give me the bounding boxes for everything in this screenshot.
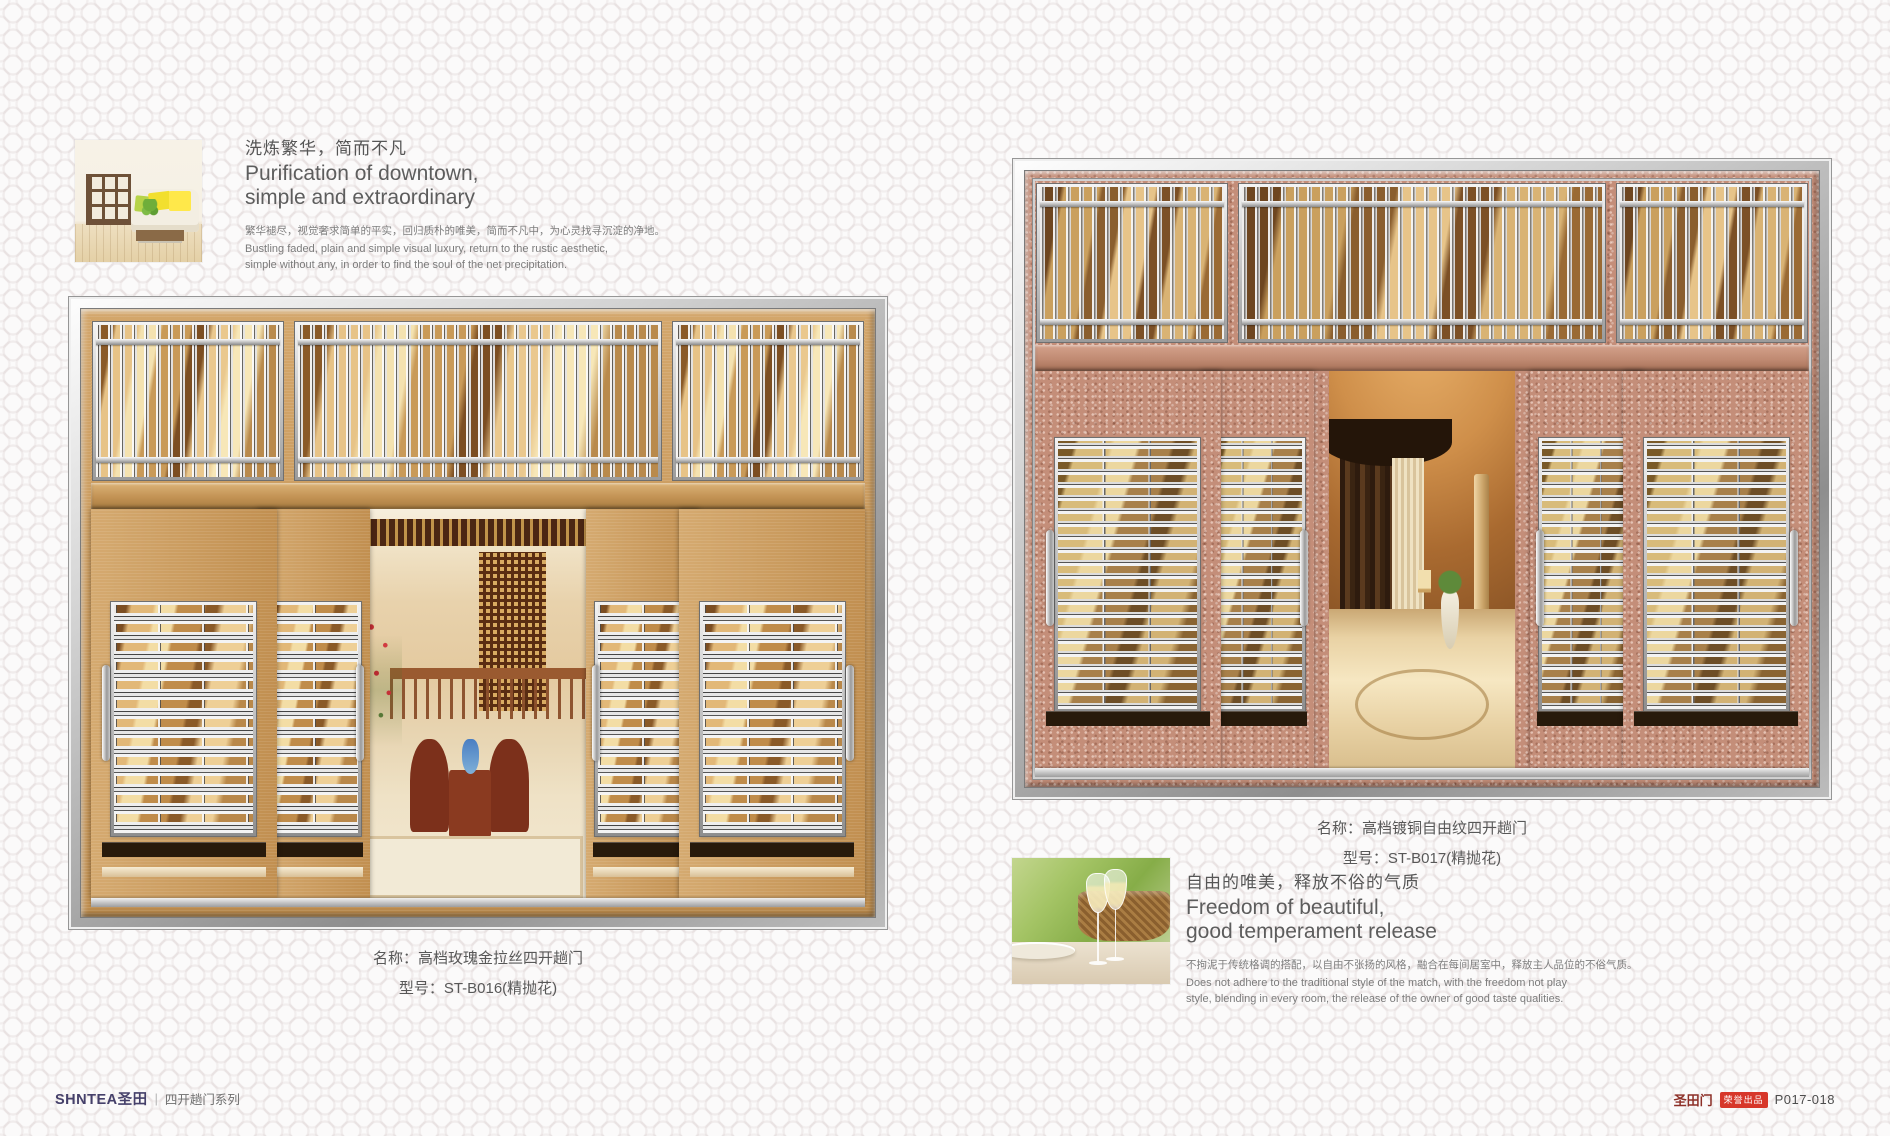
glass-stem: [1115, 909, 1117, 958]
door-main: [1035, 371, 1809, 777]
right-body-en-line1: Does not adhere to the traditional style…: [1186, 977, 1567, 989]
brand-logo: SHNTEA圣田: [55, 1088, 148, 1109]
interior-photo: [350, 509, 598, 898]
grille-window: [266, 602, 360, 835]
grille-bars: [298, 325, 658, 477]
footer-left: SHNTEA圣田 | 四开趟门系列: [55, 1088, 240, 1109]
living-room-photo: [75, 140, 202, 262]
door-main: [91, 509, 865, 907]
left-body-en-line2: simple without any, in order to find the…: [245, 259, 567, 271]
door-product-st-b016: [68, 296, 888, 930]
door-handle: [102, 665, 110, 761]
footer-separator: |: [155, 1092, 158, 1106]
left-body-cn: 繁华褪尽，视觉奢求简单的平实，回归质朴的唯美，简而不凡中，为心灵找寻沉淀的净地。: [245, 223, 675, 239]
transom: [1035, 181, 1809, 345]
grille-window: [111, 602, 256, 835]
right-body-en: Does not adhere to the traditional style…: [1186, 976, 1656, 1008]
left-intro-text: 洗炼繁华，简而不凡 Purification of downtown,simpl…: [245, 134, 675, 274]
transom-rail: [1035, 345, 1809, 371]
wine-glasses-photo: [1012, 858, 1170, 984]
door-panel: [1623, 371, 1809, 768]
glass-bowl: [1104, 869, 1128, 909]
grille-window: [1644, 438, 1789, 712]
door-handle: [1536, 530, 1544, 626]
grille-slats: [114, 605, 253, 832]
kick-stripe: [102, 867, 265, 877]
interior-chair: [489, 739, 529, 832]
right-heading-en-line2: good temperament release: [1186, 920, 1437, 943]
kick-stripe: [264, 842, 363, 857]
door-handle: [846, 665, 854, 761]
kick-stripe: [593, 867, 692, 877]
interior-table: [449, 770, 491, 836]
interior-vase: [462, 739, 479, 774]
kick-stripe: [1537, 711, 1636, 726]
thumb-pillow: [169, 191, 191, 211]
door-product-st-b017: [1012, 158, 1832, 800]
kick-stripe: [593, 842, 692, 857]
grille-bars: [96, 325, 280, 477]
right-door-name: 名称：高档镀铜自由纹四开趟门: [1012, 814, 1832, 844]
series-label: 四开趟门系列: [165, 1089, 240, 1108]
interior-railing: [390, 668, 598, 719]
interior-curtain-swag: [1329, 419, 1452, 467]
door-handle: [592, 665, 600, 761]
grille-slats: [1647, 441, 1786, 709]
glass-foot: [1106, 957, 1124, 961]
grille-window: [1210, 438, 1304, 712]
grille-slats: [703, 605, 842, 832]
right-heading-en-line1: Freedom of beautiful,: [1186, 896, 1384, 919]
kick-stripe: [102, 842, 265, 857]
door-handle: [1300, 530, 1308, 626]
grille-slats: [269, 605, 357, 832]
grille-slats: [1058, 441, 1197, 709]
grille-bars: [1040, 187, 1224, 339]
door-handle: [356, 665, 364, 761]
grille-slats: [598, 605, 686, 832]
wine-glass: [1104, 869, 1128, 965]
interior-chair: [410, 739, 450, 832]
transom-grille-panel: [295, 322, 661, 480]
door-panel: [679, 509, 865, 898]
thumb-coffee-table: [136, 230, 184, 241]
left-door-model: 型号：ST-B016(精抛花): [68, 974, 888, 1004]
quality-badge: 荣誉出品: [1720, 1092, 1768, 1108]
left-heading-cn: 洗炼繁华，简而不凡: [245, 134, 675, 159]
thumb-plant: [141, 199, 159, 226]
door-inner: [91, 319, 865, 907]
left-heading-en-line1: Purification of downtown,: [245, 162, 478, 185]
glass-stem: [1097, 912, 1099, 961]
interior-photo: [1329, 371, 1515, 768]
transom-grille-panel: [1239, 184, 1605, 342]
grille-slats: [1213, 441, 1301, 709]
door-inner: [1035, 181, 1809, 777]
kick-stripe: [690, 867, 853, 877]
interior-rug: [365, 836, 583, 898]
right-body-en-line2: style, blending in every room, the relea…: [1186, 993, 1563, 1005]
left-door-caption: 名称：高档玫瑰金拉丝四开趟门 型号：ST-B016(精抛花): [68, 944, 888, 1004]
grille-window: [1539, 438, 1633, 712]
grille-window: [700, 602, 845, 835]
left-body-en-line1: Bustling faded, plain and simple visual …: [245, 243, 608, 255]
footer-right: 圣田门 荣誉出品 P017-018: [1674, 1090, 1835, 1109]
door-panel: [91, 509, 277, 898]
right-heading-cn: 自由的唯美，释放不俗的气质: [1186, 868, 1656, 893]
right-heading-en: Freedom of beautiful,good temperament re…: [1186, 896, 1656, 943]
left-heading-en-line2: simple and extraordinary: [245, 186, 475, 209]
interior-floor-medallion: [1355, 669, 1489, 740]
kick-stripe: [690, 842, 853, 857]
transom-grille-panel: [673, 322, 863, 480]
grille-slats: [1542, 441, 1630, 709]
right-body-cn: 不拘泥于传统格调的搭配，以自由不张扬的风格，融合在每间居室中，释放主人品位的不俗…: [1186, 957, 1656, 973]
left-door-name: 名称：高档玫瑰金拉丝四开趟门: [68, 944, 888, 974]
transom-rail: [91, 483, 865, 509]
interior-ceiling-lattice: [350, 519, 598, 546]
grille-bars: [1620, 187, 1804, 339]
left-body-en: Bustling faded, plain and simple visual …: [245, 242, 675, 274]
right-intro-text: 自由的唯美，释放不俗的气质 Freedom of beautiful,good …: [1186, 868, 1656, 1008]
transom-grille-panel: [1037, 184, 1227, 342]
kick-stripe: [264, 867, 363, 877]
threshold: [1035, 768, 1809, 777]
grille-bars: [1242, 187, 1602, 339]
door-panel: [1035, 371, 1221, 768]
thumb-bookshelf: [86, 174, 130, 225]
kick-stripe: [1046, 711, 1209, 726]
threshold: [91, 898, 865, 907]
door-handle: [1046, 530, 1054, 626]
kick-stripe: [1634, 711, 1797, 726]
kick-stripe: [1208, 711, 1307, 726]
door-handle: [1790, 530, 1798, 626]
transom-grille-panel: [93, 322, 283, 480]
transom: [91, 319, 865, 483]
grille-bars: [676, 325, 860, 477]
grille-window: [595, 602, 689, 835]
left-heading-en: Purification of downtown,simple and extr…: [245, 162, 675, 209]
page-number: P017-018: [1775, 1092, 1835, 1107]
grille-window: [1055, 438, 1200, 712]
brand-right-label: 圣田门: [1674, 1090, 1713, 1109]
transom-grille-panel: [1617, 184, 1807, 342]
